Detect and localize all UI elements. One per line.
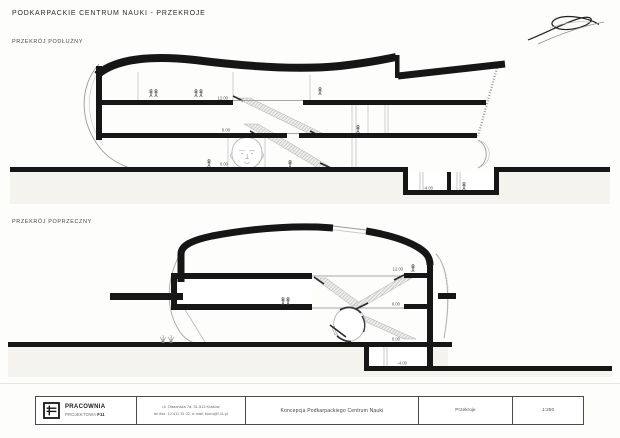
- ground-fill: [8, 347, 612, 377]
- head-sculpture: [231, 138, 264, 169]
- sheet-divider-line: [0, 383, 620, 384]
- level-label-minus4: -4.00: [423, 186, 433, 191]
- page-title: PODKARPACKIE CENTRUM NAUKI - PRZEKROJE: [12, 10, 206, 17]
- section-1-label: PRZEKRÓJ PODŁUŻNY: [12, 39, 83, 45]
- hand-drawn-signature-icon: [520, 4, 612, 48]
- level-label-0: 0.00: [392, 337, 401, 342]
- title-block-scale-cell: 1:250: [512, 397, 583, 424]
- title-block: PRACOWNIA PROJEKTOWA F11 ul. Olszańska 7…: [35, 396, 584, 425]
- floor-slab-6: [100, 133, 477, 138]
- title-block-drawing-cell: Przekroje: [418, 397, 513, 424]
- right-wall: [427, 262, 433, 366]
- escalators: [314, 278, 416, 339]
- level-label-12: 12.00: [218, 95, 229, 100]
- level-label-0: 0.00: [220, 162, 229, 167]
- ground-line: [10, 167, 610, 172]
- head-sculpture: [333, 307, 365, 341]
- drawing-sheet: PODKARPACKIE CENTRUM NAUKI - PRZEKROJE P…: [0, 0, 620, 438]
- title-block-address-cell: ul. Olszańska 7a, 31-513 Kraków tel./fax…: [136, 397, 246, 424]
- interior-partition-lines: [138, 72, 388, 167]
- curved-facade-left: [84, 64, 130, 168]
- transverse-section-drawing: 12.00 6.00 0.00 -4.00: [0, 220, 620, 380]
- left-wall: [96, 66, 102, 140]
- title-block-project-cell: Koncepcja Podkarpackiego Centrum Nauki: [245, 397, 417, 424]
- f11-logo-icon: [43, 402, 60, 419]
- floor-slab-12: [100, 100, 486, 105]
- longitudinal-section-drawing: 12.00 6.00 0.00 -4.00: [0, 48, 620, 213]
- skylight: [333, 230, 366, 234]
- level-label-minus4: -4.00: [397, 361, 407, 366]
- ground-fill: [10, 172, 610, 204]
- ground-line: [8, 342, 452, 347]
- address-line2: tel./fax. 12 411 31 02, e-mail: biuro@f-…: [154, 411, 228, 417]
- curved-door: [478, 140, 489, 168]
- level-label-12: 12.00: [393, 267, 404, 272]
- title-block-company-cell: PRACOWNIA PROJEKTOWA F11: [36, 397, 136, 424]
- level-label-6: 6.00: [222, 128, 231, 133]
- company-name-line1: PRACOWNIA: [65, 404, 105, 412]
- company-name: PRACOWNIA PROJEKTOWA F11: [65, 404, 105, 417]
- roof: [97, 55, 505, 78]
- company-name-line2: PROJEKTOWA F11: [65, 412, 105, 417]
- canopy: [110, 293, 183, 300]
- floor-box: [174, 276, 312, 307]
- level-label-6: 6.00: [392, 301, 401, 306]
